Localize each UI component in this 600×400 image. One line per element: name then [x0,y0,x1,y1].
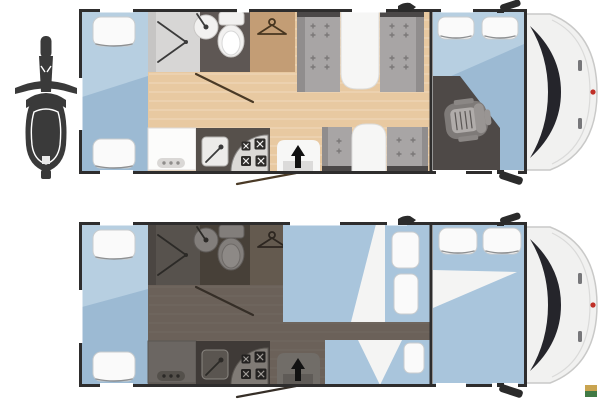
window [436,383,466,388]
entry-door-swing [237,173,296,184]
floorplan-diagram [0,0,600,400]
brand-logo-dot [590,302,595,307]
converted-side-bed [325,340,430,385]
side-bed-cushions [385,224,431,322]
bed-pillow [439,228,477,254]
window [290,221,340,226]
scooter-front-wheel [41,36,52,58]
bed-pillow [483,228,521,254]
shower [148,12,200,72]
bed-cushion [392,232,419,268]
side-table [352,124,386,172]
bed-pillow [93,139,135,168]
window [100,221,133,226]
window [100,8,133,13]
window [100,383,133,388]
window [352,8,386,13]
entry-door-swing [237,386,296,397]
bed-pillow [482,17,518,39]
side-bench-right [387,127,428,173]
floorplan-day [78,0,598,186]
washroom [194,12,250,72]
window [100,170,133,175]
rear-twin-beds [82,12,148,171]
bed-cushion [394,274,418,314]
scooter-plate [42,156,50,164]
side-bench-left [322,127,352,173]
scooter-icon [15,36,77,179]
bed-pillow [438,17,474,39]
dimmed-washroom [194,225,250,285]
floorplan-svg [0,0,600,400]
watermark [585,385,597,397]
floorplan-night [78,212,598,399]
brand-logo-dot [590,89,595,94]
wardrobe [250,12,295,72]
scooter-handlebar [15,81,77,94]
bed-cushion [404,343,424,373]
converted-dinette-bed [283,224,385,322]
kitchen-block [196,128,270,172]
overcab-double-bed [433,224,524,384]
dinette-table [341,11,379,89]
dinette-front-bench [297,10,340,92]
toilet-icon [218,225,244,270]
bed-pillow [93,17,135,46]
rear-twin-beds [82,225,148,384]
scooter-rear-wheel [41,170,51,179]
dimmed-kitchen-block [196,341,270,385]
window [237,8,249,13]
toilet-icon [218,12,244,57]
dinette-rear-bench [380,10,424,92]
entry-door [277,140,320,172]
bed-pillow [93,352,135,381]
window [441,8,473,13]
rear-window [78,290,83,343]
bed-pillow [93,230,135,259]
window [436,170,466,175]
rear-window [78,78,83,130]
dimmed-shower [148,225,200,285]
dimmed-entry-door [277,353,320,385]
